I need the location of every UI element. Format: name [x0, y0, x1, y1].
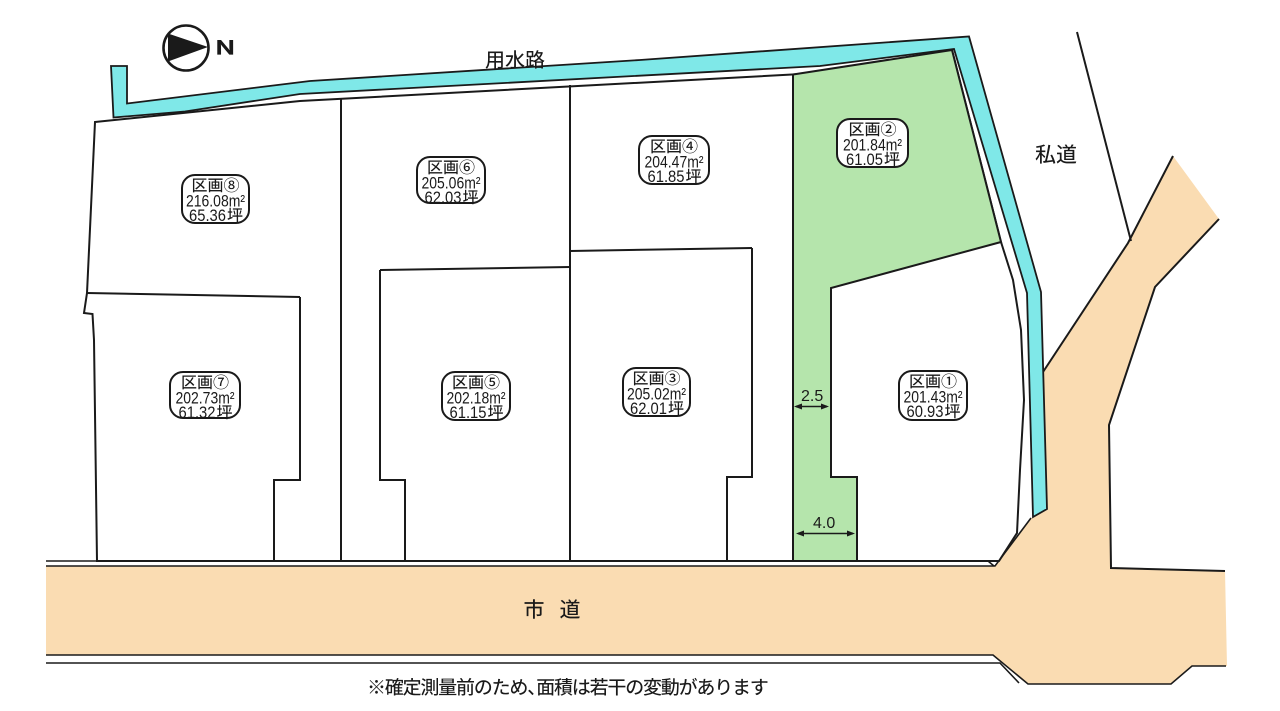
- svg-text:65.36: 65.36: [189, 206, 226, 225]
- svg-text:4.0: 4.0: [813, 515, 835, 532]
- svg-text:61.15: 61.15: [450, 403, 487, 422]
- svg-text:2.5: 2.5: [801, 388, 823, 405]
- svg-text:60.93: 60.93: [907, 402, 944, 421]
- svg-text:62.03: 62.03: [425, 188, 462, 207]
- svg-text:61.32: 61.32: [179, 403, 216, 422]
- svg-text:61.85: 61.85: [648, 167, 685, 186]
- svg-text:61.05: 61.05: [846, 150, 883, 169]
- svg-text:62.01: 62.01: [630, 399, 667, 418]
